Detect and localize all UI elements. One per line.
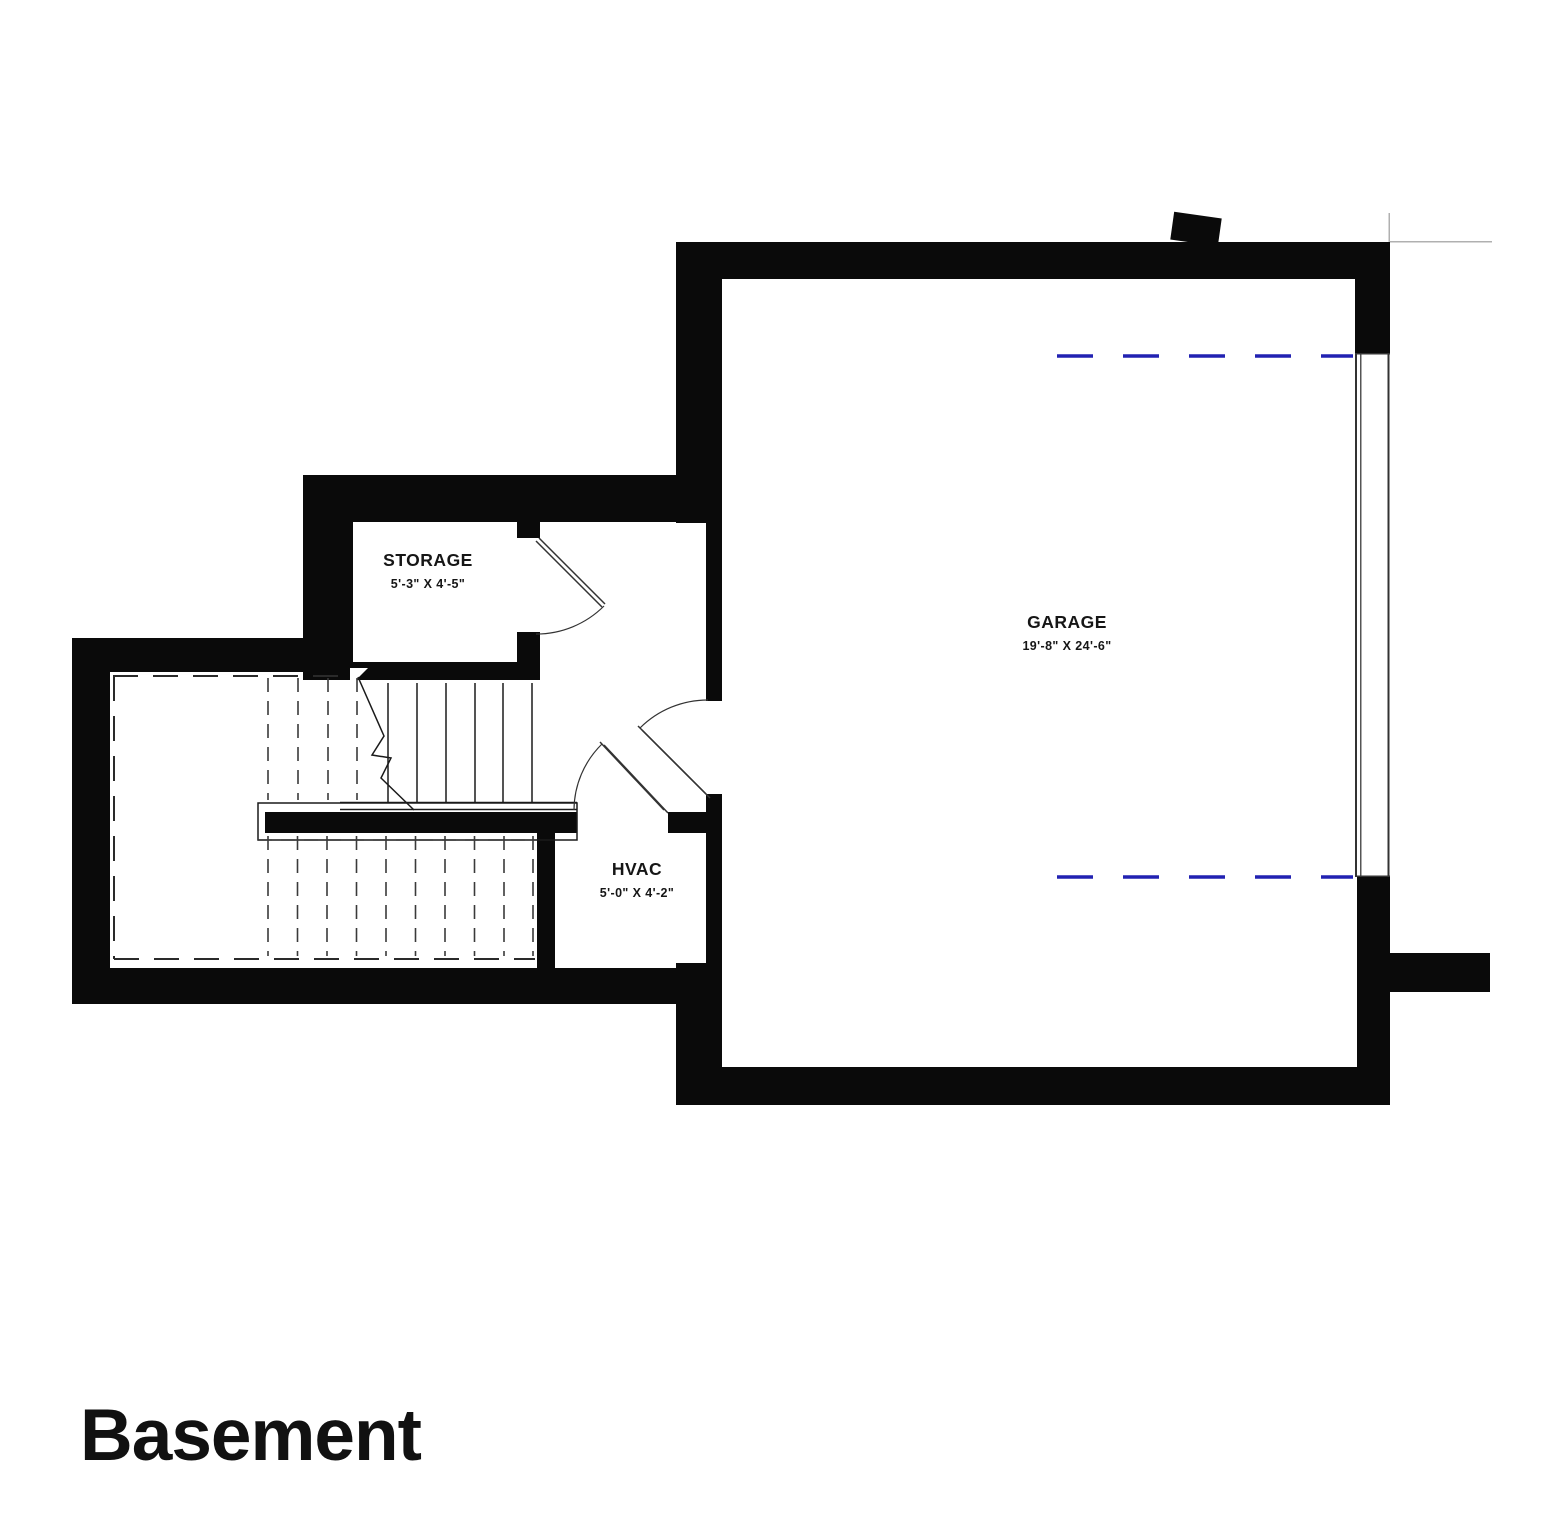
construction-line-horizontal <box>1390 241 1492 243</box>
wall-storage-door-jamb-bottom <box>517 632 540 662</box>
storage-door <box>536 538 605 634</box>
wall-storage-top <box>303 475 722 522</box>
hallway-garage-door <box>638 700 710 798</box>
garage-door-track-lines <box>1057 356 1353 877</box>
wall-right-stub <box>1390 953 1490 992</box>
construction-line-vertical <box>1389 213 1391 242</box>
wall-hvac-northeast-block <box>668 812 706 833</box>
hvac-door <box>574 742 668 813</box>
wall-storage-bottom <box>353 662 540 680</box>
walls <box>72 212 1490 1105</box>
floor-plan: STORAGE 5'-3" X 4'-5" HVAC 5'-0" X 4'-2"… <box>0 0 1545 1536</box>
wall-stair-left <box>72 638 110 1004</box>
wall-garage-top <box>676 242 1390 279</box>
construction-lines <box>1389 213 1493 243</box>
wall-stair-top <box>72 638 353 672</box>
wall-garage-bottom <box>676 1067 1390 1105</box>
garage-window <box>1355 353 1390 877</box>
wall-bottom <box>72 968 722 1004</box>
stair-break-line <box>358 677 414 810</box>
doors <box>536 538 710 813</box>
wall-stair-center-bar <box>265 812 577 833</box>
wall-hvac-west <box>537 833 555 968</box>
stair-treads <box>388 683 532 802</box>
wall-garage-right-upper <box>1355 242 1390 354</box>
wall-garage-west-hvac <box>706 794 722 964</box>
wall-garage-west-hall <box>706 522 722 701</box>
wall-top-stub <box>1170 212 1221 246</box>
wall-storage-door-jamb-top <box>517 522 540 538</box>
floor-plan-drawing <box>0 0 1545 1536</box>
floor-title: Basement <box>80 1394 421 1477</box>
